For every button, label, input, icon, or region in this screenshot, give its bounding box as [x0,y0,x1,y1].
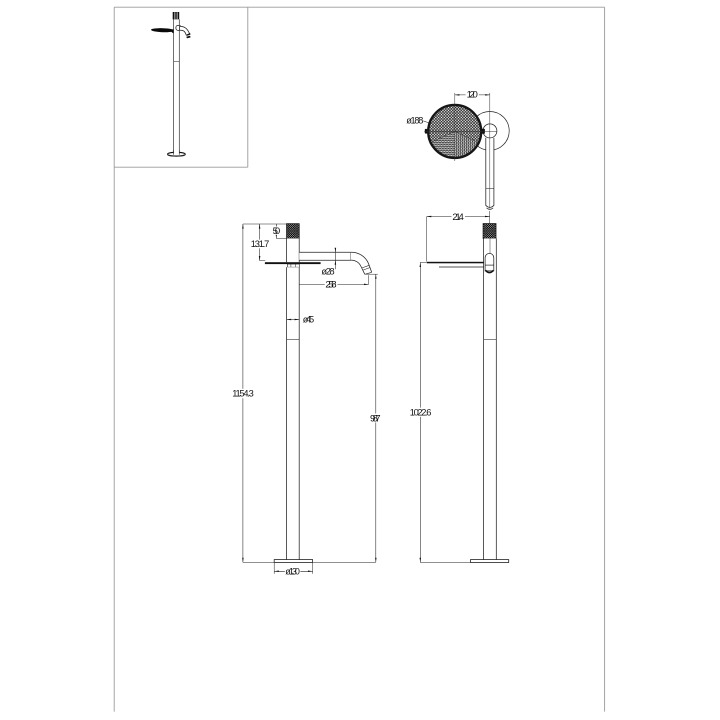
svg-text:258: 258 [325,280,336,291]
svg-text:987: 987 [370,413,381,424]
svg-text:120: 120 [467,90,478,101]
svg-text:ø28: ø28 [321,267,334,277]
svg-text:50: 50 [273,226,281,237]
svg-text:ø45: ø45 [303,315,314,325]
svg-text:214: 214 [452,212,464,223]
svg-text:ø130: ø130 [285,566,300,576]
svg-text:131.7: 131.7 [251,239,270,249]
svg-text:1154.3: 1154.3 [232,389,254,399]
svg-text:1022.6: 1022.6 [410,407,432,417]
svg-text:ø188: ø188 [406,116,423,126]
